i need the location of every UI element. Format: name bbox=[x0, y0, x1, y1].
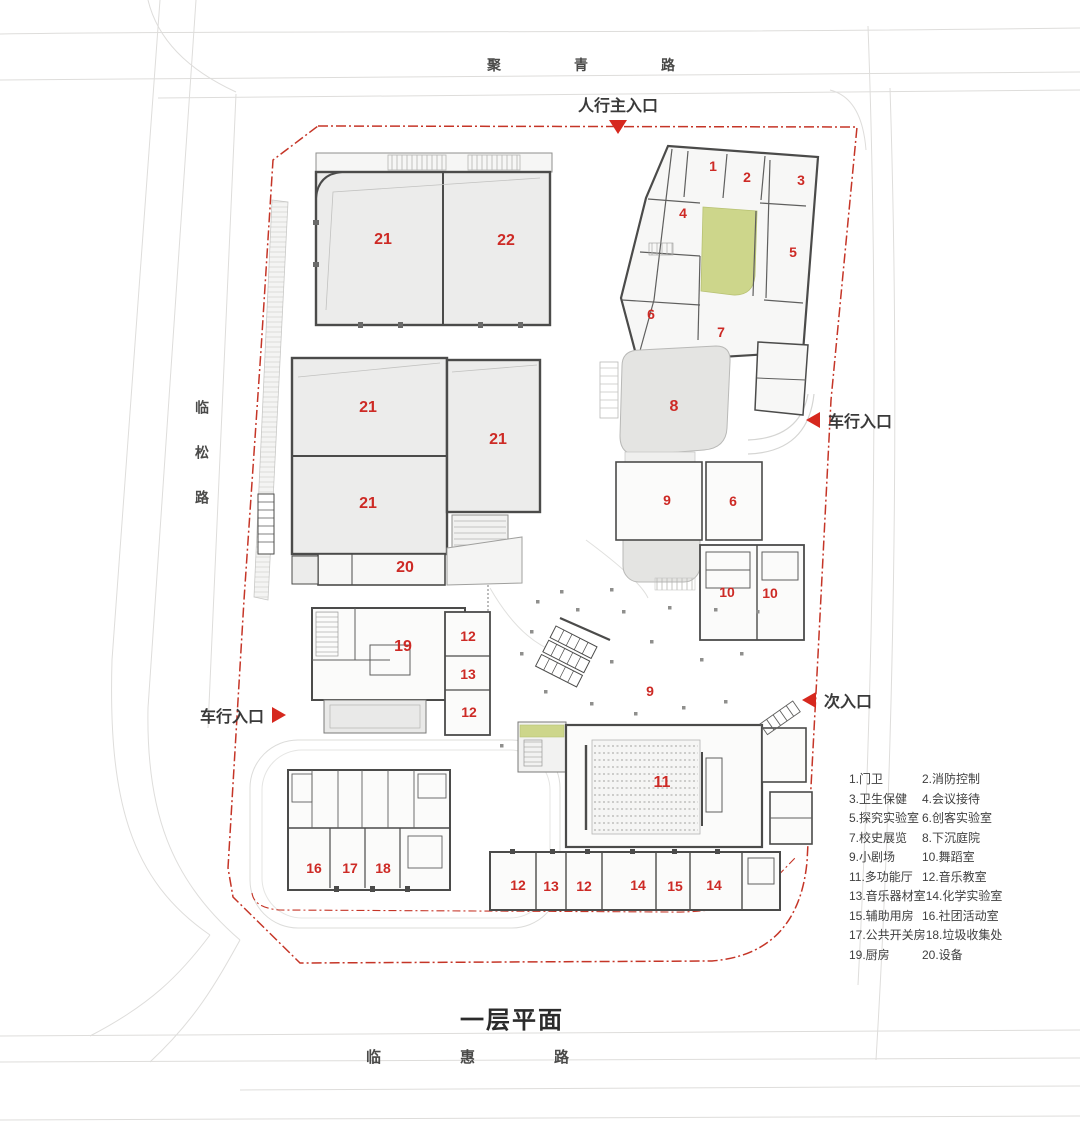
room-label: 1 bbox=[709, 159, 717, 173]
room-label: 12 bbox=[461, 705, 477, 719]
legend-row: 17.公共开关房18.垃圾收集处 bbox=[849, 926, 1029, 946]
legend-entry: 9.小剧场 bbox=[849, 848, 922, 868]
plaza-stairs bbox=[536, 618, 610, 687]
room-label: 5 bbox=[789, 245, 797, 259]
green-courtyard bbox=[701, 207, 757, 295]
entrance-main-pedestrian: 人行主入口 bbox=[578, 92, 658, 134]
room-label: 21 bbox=[489, 432, 507, 448]
legend-entry: 7.校史展览 bbox=[849, 829, 922, 849]
room-label: 12 bbox=[510, 878, 526, 892]
green-strip bbox=[520, 725, 564, 737]
legend-row: 11.多功能厅12.音乐教室 bbox=[849, 868, 1029, 888]
road-label-top: 聚青路 bbox=[487, 55, 748, 75]
room-label: 6 bbox=[729, 494, 737, 508]
room-label: 7 bbox=[717, 325, 725, 339]
room-label: 22 bbox=[497, 233, 515, 249]
legend-row: 3.卫生保健4.会议接待 bbox=[849, 790, 1029, 810]
legend-row: 1.门卫2.消防控制 bbox=[849, 770, 1029, 790]
legend-entry: 6.创客实验室 bbox=[922, 809, 992, 829]
page-title: 一层平面 bbox=[460, 1000, 620, 1035]
legend-entry: 16.社团活动室 bbox=[922, 907, 999, 927]
legend-entry: 1.门卫 bbox=[849, 770, 922, 790]
legend-entry: 20.设备 bbox=[922, 946, 963, 966]
legend-entry: 17.公共开关房 bbox=[849, 926, 926, 946]
legend-entry: 11.多功能厅 bbox=[849, 868, 922, 888]
entrance-arrow-right-icon bbox=[272, 707, 286, 723]
legend-row: 19.厨房20.设备 bbox=[849, 946, 1029, 966]
room-label: 12 bbox=[576, 879, 592, 893]
room-label: 21 bbox=[359, 400, 377, 416]
entrance-vehicle-left: 车行入口 bbox=[200, 703, 286, 727]
entrance-vehicle-right-label: 车行入口 bbox=[828, 408, 892, 432]
floor-plan-canvas: 聚青路 临松路 临惠路 人行主入口 车行入口 次入口 车行入口 21221234… bbox=[0, 0, 1080, 1134]
room-label: 10 bbox=[762, 586, 778, 600]
entrance-arrow-down-icon bbox=[609, 120, 627, 134]
legend-entry: 3.卫生保健 bbox=[849, 790, 922, 810]
legend-row: 7.校史展览8.下沉庭院 bbox=[849, 829, 1029, 849]
entrance-main-label: 人行主入口 bbox=[578, 92, 658, 116]
legend: 1.门卫2.消防控制3.卫生保健4.会议接待5.探究实验室6.创客实验室7.校史… bbox=[849, 770, 1029, 965]
legend-row: 15.辅助用房16.社团活动室 bbox=[849, 907, 1029, 927]
room-label: 10 bbox=[719, 585, 735, 599]
room-label: 14 bbox=[706, 878, 722, 892]
road-label-bottom: 临惠路 bbox=[366, 1046, 648, 1067]
legend-row: 5.探究实验室6.创客实验室 bbox=[849, 809, 1029, 829]
entrance-secondary: 次入口 bbox=[802, 688, 872, 712]
room-label: 16 bbox=[306, 861, 322, 875]
room-label: 13 bbox=[543, 879, 559, 893]
legend-row: 13.音乐器材室14.化学实验室 bbox=[849, 887, 1029, 907]
room-label: 2 bbox=[743, 170, 751, 184]
room-label: 14 bbox=[630, 878, 646, 892]
room-label: 18 bbox=[375, 861, 391, 875]
building-block-b bbox=[292, 358, 540, 612]
legend-entry: 18.垃圾收集处 bbox=[926, 926, 1003, 946]
room-label: 19 bbox=[394, 639, 412, 655]
room-label: 12 bbox=[460, 629, 476, 643]
room-label: 20 bbox=[396, 560, 414, 576]
legend-entry: 8.下沉庭院 bbox=[922, 829, 980, 849]
left-edge-ramp bbox=[254, 200, 288, 600]
legend-entry: 5.探究实验室 bbox=[849, 809, 922, 829]
room-label: 15 bbox=[667, 879, 683, 893]
legend-row: 9.小剧场10.舞蹈室 bbox=[849, 848, 1029, 868]
legend-entry: 19.厨房 bbox=[849, 946, 922, 966]
room-label: 13 bbox=[460, 667, 476, 681]
entrance-vehicle-left-label: 车行入口 bbox=[200, 703, 264, 727]
legend-entry: 2.消防控制 bbox=[922, 770, 980, 790]
legend-entry: 13.音乐器材室 bbox=[849, 887, 926, 907]
legend-entry: 12.音乐教室 bbox=[922, 868, 987, 888]
entrance-vehicle-right: 车行入口 bbox=[806, 408, 892, 432]
room-label: 4 bbox=[679, 206, 687, 220]
room-label: 17 bbox=[342, 861, 358, 875]
legend-entry: 15.辅助用房 bbox=[849, 907, 922, 927]
room-label: 21 bbox=[374, 232, 392, 248]
room-label: 9 bbox=[663, 493, 671, 507]
entrance-arrow-left-icon bbox=[806, 412, 820, 428]
legend-entry: 4.会议接待 bbox=[922, 790, 980, 810]
room-label: 8 bbox=[670, 399, 679, 415]
legend-entry: 14.化学实验室 bbox=[926, 887, 1003, 907]
room-label: 3 bbox=[797, 173, 805, 187]
entrance-secondary-label: 次入口 bbox=[824, 688, 872, 712]
room-label: 9 bbox=[646, 684, 654, 698]
room-label: 21 bbox=[359, 496, 377, 512]
legend-entry: 10.舞蹈室 bbox=[922, 848, 975, 868]
entrance-arrow-left-icon bbox=[802, 692, 816, 708]
room-label: 6 bbox=[647, 307, 655, 321]
road-label-left: 临松路 bbox=[192, 400, 212, 535]
building-block-a bbox=[313, 153, 552, 328]
room-label: 11 bbox=[654, 775, 671, 791]
